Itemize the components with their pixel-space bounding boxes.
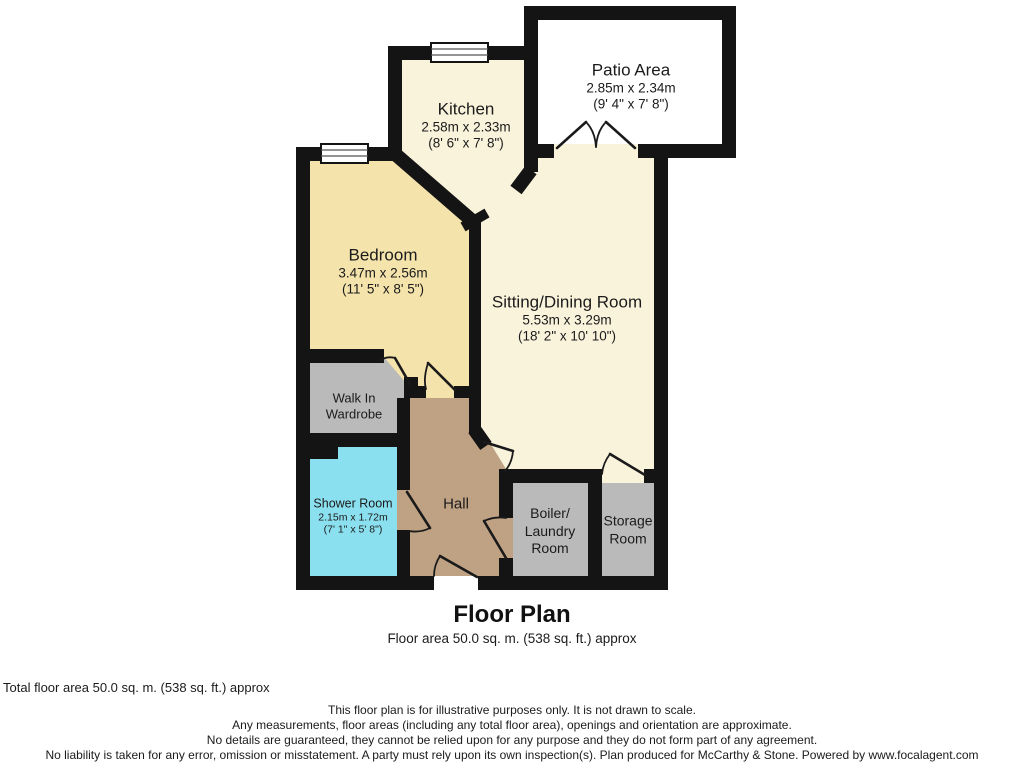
room-dimensions-imperial: (7' 1" x 5' 8") (313, 524, 392, 536)
wall-building-right (654, 150, 668, 590)
wall-boiler-left-lower (499, 558, 513, 576)
disclaimer-line: This floor plan is for illustrative purp… (0, 703, 1024, 718)
room-name-line: Storage (603, 513, 652, 531)
wall-boiler-storage-divider (588, 469, 602, 576)
room-name: Bedroom (338, 244, 427, 265)
wall-shower-step (303, 447, 338, 459)
room-name-line: Walk In (326, 390, 383, 406)
room-dimensions-metric: 2.15m x 1.72m (313, 511, 392, 523)
room-name-line: Boiler/ (525, 505, 576, 523)
room-dimensions-metric: 5.53m x 3.29m (492, 313, 642, 329)
room-label-kitchen: Kitchen 2.58m x 2.33m (8' 6" x 7' 8") (421, 98, 510, 151)
room-label-shower: Shower Room 2.15m x 1.72m (7' 1" x 5' 8"… (313, 496, 392, 535)
room-label-storage: Storage Room (603, 513, 652, 548)
room-name-line: Laundry (525, 522, 576, 540)
room-name-line: Room (603, 530, 652, 548)
wall-patio-bottom-left (524, 144, 554, 158)
room-name-line: Room (525, 540, 576, 558)
wall-building-bottom-left (296, 576, 434, 590)
kitchen-window-icon (431, 43, 488, 62)
wall-boiler-left-upper (499, 469, 513, 518)
room-label-bedroom: Bedroom 3.47m x 2.56m (11' 5" x 8' 5") (338, 244, 427, 297)
wall-patio-top (524, 6, 736, 20)
wall-shower-right-lower (397, 530, 410, 576)
disclaimer-block: This floor plan is for illustrative purp… (0, 703, 1024, 763)
room-dimensions-metric: 2.85m x 2.34m (586, 81, 675, 97)
plan-title: Floor Plan (0, 601, 1024, 629)
room-name: Hall (443, 496, 469, 515)
disclaimer-line: Any measurements, floor areas (including… (0, 718, 1024, 733)
disclaimer-line: No liability is taken for any error, omi… (0, 748, 1024, 763)
doorway-floor-bedroom (426, 386, 454, 398)
room-name: Sitting/Dining Room (492, 291, 642, 312)
plan-subtitle: Floor area 50.0 sq. m. (538 sq. ft.) app… (0, 631, 1024, 646)
wall-patio-bottom-right (638, 144, 736, 158)
window-frame (431, 43, 488, 62)
room-name: Shower Room (313, 496, 392, 511)
room-dimensions-imperial: (11' 5" x 8' 5") (338, 282, 427, 298)
room-dimensions-metric: 3.47m x 2.56m (338, 266, 427, 282)
room-label-patio: Patio Area 2.85m x 2.34m (9' 4" x 7' 8") (586, 59, 675, 112)
wall-bedroom-hall-right (454, 386, 481, 398)
room-dimensions-imperial: (9' 4" x 7' 8") (586, 97, 675, 113)
room-dimensions-imperial: (8' 6" x 7' 8") (421, 136, 510, 152)
wall-building-left (296, 147, 310, 590)
window-frame (321, 144, 368, 163)
wall-bedroom-sitting-divider (469, 218, 481, 433)
wall-wardrobe-bottom (296, 433, 410, 447)
wall-boiler-top (499, 469, 595, 483)
room-label-boiler: Boiler/ Laundry Room (525, 505, 576, 558)
wall-kitchen-left (388, 46, 402, 156)
room-label-wardrobe: Walk In Wardrobe (326, 390, 383, 421)
wall-shower-right-upper (397, 398, 410, 490)
room-dimensions-imperial: (18' 2" x 10' 10") (492, 329, 642, 345)
bedroom-window-icon (321, 144, 368, 163)
wall-wardrobe-top (296, 349, 384, 363)
wall-patio-right (722, 6, 736, 158)
wall-bedroom-hall-left (404, 386, 426, 398)
wall-hall-sitting-diagonal (474, 429, 486, 446)
room-name: Patio Area (586, 59, 675, 80)
room-label-hall: Hall (443, 496, 469, 515)
floor-plan-page: Patio Area 2.85m x 2.34m (9' 4" x 7' 8")… (0, 0, 1024, 770)
total-floor-area: Total floor area 50.0 sq. m. (538 sq. ft… (3, 680, 270, 695)
room-label-sitting: Sitting/Dining Room 5.53m x 3.29m (18' 2… (492, 291, 642, 344)
room-name: Kitchen (421, 98, 510, 119)
wall-building-bottom-right (478, 576, 668, 590)
room-dimensions-metric: 2.58m x 2.33m (421, 120, 510, 136)
disclaimer-line: No details are guaranteed, they cannot b… (0, 733, 1024, 748)
room-name-line: Wardrobe (326, 406, 383, 422)
wall-storage-top (644, 469, 668, 483)
